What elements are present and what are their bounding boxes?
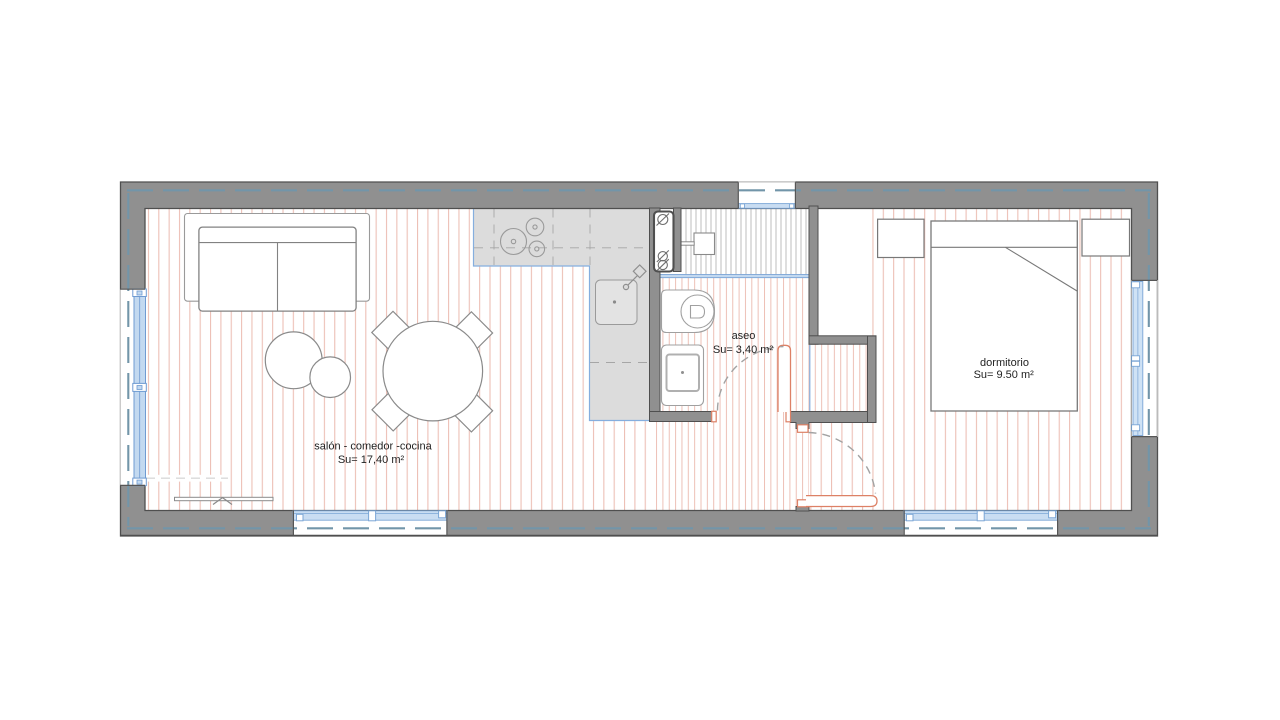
svg-text:salón - comedor -cocina: salón - comedor -cocina xyxy=(314,441,432,453)
svg-text:Su= 3,40 m²: Su= 3,40 m² xyxy=(713,344,774,356)
svg-text:dormitorio: dormitorio xyxy=(980,357,1029,369)
svg-text:aseo: aseo xyxy=(732,330,756,342)
svg-text:Su= 17,40 m²: Su= 17,40 m² xyxy=(338,454,405,466)
svg-text:Su= 9.50 m²: Su= 9.50 m² xyxy=(974,369,1035,381)
